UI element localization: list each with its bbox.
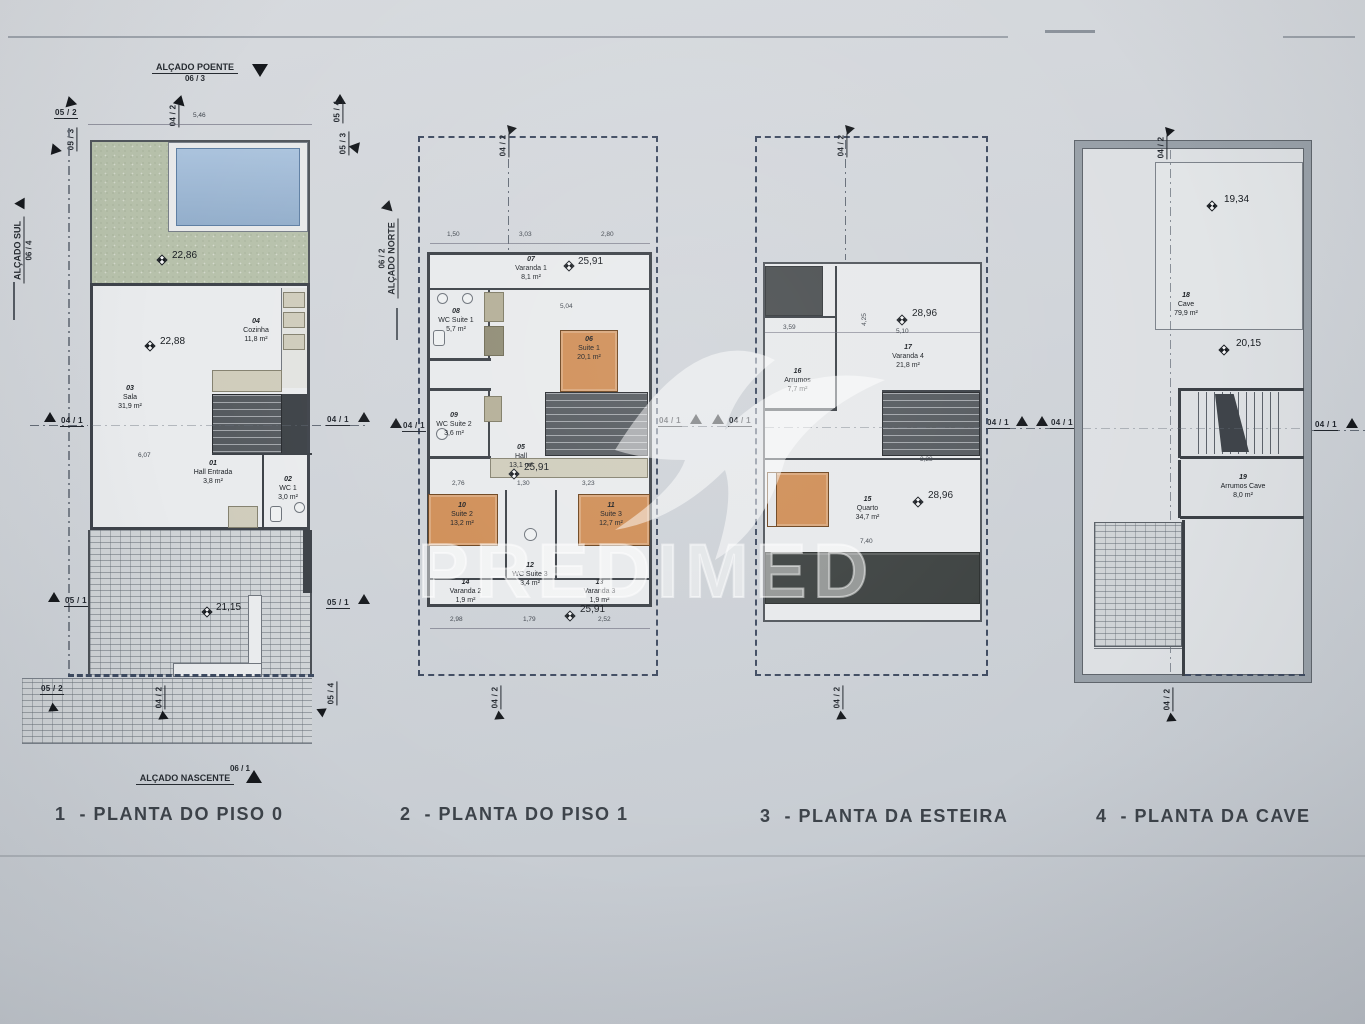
sheet-top-line-far-right: [1283, 36, 1355, 38]
room-area: 79,9 m²: [1160, 310, 1212, 319]
section-arrow-icon: [1016, 416, 1028, 426]
section-ref-04-1: 04 / 1: [986, 418, 1010, 429]
section-arrow-icon: [44, 412, 56, 422]
swimming-pool: [176, 148, 300, 226]
elevation-label-sul: ALÇADO SUL 06 / 4: [13, 196, 34, 306]
driveway-paving: [22, 678, 312, 744]
dim-line: [88, 124, 312, 125]
wall-segment: [427, 456, 491, 459]
room-label-cave: 18 Cave 79,9 m²: [1160, 292, 1212, 318]
sink-fixture: [462, 293, 473, 304]
section-arrow-icon: [46, 143, 62, 158]
wall-segment: [1182, 520, 1185, 676]
dimension: 1,30: [517, 480, 530, 487]
leader-line: [13, 282, 15, 320]
level-value: 22,86: [172, 250, 197, 261]
room-name: Suite 2: [436, 511, 488, 520]
room-num: 05: [496, 444, 546, 453]
dimension: 2,98: [450, 616, 463, 623]
wall-segment: [282, 394, 307, 454]
dimension: 1,79: [523, 616, 536, 623]
level-value: 25,91: [524, 462, 549, 473]
room-num: 04: [233, 318, 279, 327]
sheet-top-line: [8, 36, 1008, 38]
section-ref-04-2: 04 / 2: [1156, 136, 1167, 160]
elevation-nascente-name: ALÇADO NASCENTE: [136, 773, 235, 785]
leader-line: [396, 308, 398, 340]
elevation-label-nascente: 06 / 1 ALÇADO NASCENTE: [110, 764, 260, 785]
room-num: 19: [1212, 474, 1274, 483]
elevation-label-norte: 06 / 2 ALÇADO NORTE: [378, 199, 399, 319]
section-arrow-icon: [836, 711, 848, 724]
section-ref-05-3-right: 05 / 3: [338, 132, 349, 156]
elevation-norte-name: ALÇADO NORTE: [387, 218, 399, 299]
section-ref-04-1: 04 / 1: [1050, 418, 1074, 429]
room-label-varanda1: 07 Varanda 1 8,1 m²: [505, 256, 557, 282]
wall-segment: [1180, 388, 1304, 391]
dimension: 2,52: [598, 616, 611, 623]
caption-esteira: 3 - PLANTA DA ESTEIRA: [760, 806, 1008, 827]
room-area: 31,9 m²: [107, 403, 153, 412]
room-num: 07: [505, 256, 557, 265]
sheet-top-line-right: [1045, 30, 1095, 33]
section-ref-04-1: 04 / 1: [1314, 420, 1338, 431]
section-centerline: [508, 140, 509, 252]
section-ref-05-1: 05 / 1: [326, 598, 350, 609]
kitchen-appliance: [283, 334, 305, 350]
section-arrow-icon: [390, 418, 402, 428]
section-ref-05-4: 05 / 4: [326, 682, 337, 706]
room-name: Hall Entrada: [188, 469, 238, 478]
elevation-poente-name: ALÇADO POENTE: [152, 62, 238, 74]
room-name: Arrumos Cave: [1212, 483, 1274, 492]
room-label-arrumos-cave: 19 Arrumos Cave 8,0 m²: [1212, 474, 1274, 500]
sink-fixture: [437, 293, 448, 304]
section-ref-04-1: 04 / 1: [326, 415, 350, 426]
section-arrow-icon: [1346, 418, 1358, 428]
dimension: 5,46: [193, 112, 206, 119]
caption-cave: 4 - PLANTA DA CAVE: [1096, 806, 1311, 827]
room-num: 10: [436, 502, 488, 511]
elevation-sul-name: ALÇADO SUL: [13, 217, 25, 284]
level-value: 20,15: [1236, 338, 1261, 349]
room-num: 01: [188, 460, 238, 469]
section-ref-05-4: 05 / 4: [332, 100, 343, 124]
wall-segment: [427, 358, 491, 361]
room-label-sala: 03 Sala 31,9 m²: [107, 385, 153, 411]
boundary-dashed-line: [1185, 674, 1305, 676]
room-name: Cave: [1160, 301, 1212, 310]
wall-segment: [430, 288, 649, 290]
section-arrow-icon: [63, 95, 77, 108]
room-num: 09: [428, 412, 480, 421]
section-arrow-icon: [252, 64, 268, 77]
section-arrow-icon: [358, 412, 370, 422]
dimension: 2,76: [452, 480, 465, 487]
wall-segment: [303, 530, 312, 593]
dim-line: [430, 628, 650, 629]
kitchen-appliance: [283, 292, 305, 308]
elevation-sul-ref: 06 / 4: [25, 196, 34, 306]
entry-mat: [228, 506, 258, 528]
room-name: WC Suite 1: [430, 317, 482, 326]
stairs-piso0: [212, 394, 282, 454]
kitchen-island: [212, 370, 282, 392]
wc-sink-fixture: [294, 502, 305, 513]
section-ref-05-2: 05 / 2: [40, 684, 64, 695]
section-centerline: [845, 140, 846, 260]
wall-segment: [427, 388, 491, 391]
section-ref-04-2: 04 / 2: [154, 686, 165, 710]
room-label-wc-suite1: 08 WC Suite 1 5,7 m²: [430, 308, 482, 334]
room-label-wc-suite2: 09 WC Suite 2 3,6 m²: [428, 412, 480, 438]
elevation-norte-ref: 06 / 2: [378, 199, 387, 319]
section-arrow-icon: [494, 711, 506, 724]
closet: [484, 292, 504, 322]
elevation-nascente-ref: 06 / 1: [110, 764, 260, 773]
sheet-bottom-line: [0, 855, 1365, 857]
room-num: 03: [107, 385, 153, 394]
room-label-hall-entrada: 01 Hall Entrada 3,8 m²: [188, 460, 238, 486]
dimension: 2,80: [601, 231, 614, 238]
caption-piso0: 1 - PLANTA DO PISO 0: [55, 804, 284, 825]
wall-segment: [1180, 516, 1304, 519]
section-arrow-icon: [48, 592, 60, 602]
closet: [484, 396, 502, 422]
section-arrow-icon: [358, 594, 370, 604]
wall-segment: [1178, 460, 1181, 518]
elevation-poente-ref: 06 / 3: [130, 74, 260, 83]
dimension: 6,07: [138, 452, 151, 459]
dimension: 1,50: [447, 231, 460, 238]
drawing-sheet: ALÇADO POENTE 06 / 3 05 / 2 04 / 2 5,46 …: [0, 0, 1365, 1024]
section-centerline: [92, 425, 308, 426]
room-area: 3,8 m²: [188, 478, 238, 487]
section-centerline: [1082, 428, 1304, 429]
predimed-watermark: PREDIMED: [418, 528, 875, 615]
room-name: Varanda 1: [505, 265, 557, 274]
section-ref-04-2: 04 / 2: [832, 686, 843, 710]
room-label-suite2: 10 Suite 2 13,2 m²: [436, 502, 488, 528]
section-ref-04-1: 04 / 1: [60, 416, 84, 427]
level-value: 19,34: [1224, 194, 1249, 205]
section-arrow-icon: [1166, 713, 1178, 726]
section-ref-04-2: 04 / 2: [490, 686, 501, 710]
floor-joint-line: [1094, 648, 1182, 649]
section-arrow-icon: [246, 770, 262, 783]
level-value: 25,91: [578, 256, 603, 267]
section-ref-04-1: 04 / 1: [402, 421, 426, 432]
room-area: 11,8 m²: [233, 336, 279, 345]
room-area: 8,1 m²: [505, 274, 557, 283]
room-name: WC 1: [266, 485, 310, 494]
section-ref-04-2: 04 / 2: [1162, 688, 1173, 712]
level-value: 21,15: [216, 602, 241, 613]
room-area: 3,0 m²: [266, 494, 310, 503]
boundary-line: [68, 128, 70, 676]
section-ref-05-1: 05 / 1: [64, 596, 88, 607]
room-num: 18: [1160, 292, 1212, 301]
section-ref-05-2: 05 / 2: [54, 108, 78, 119]
level-value: 22,88: [160, 336, 185, 347]
dimension: 3,03: [519, 231, 532, 238]
caption-piso1: 2 - PLANTA DO PISO 1: [400, 804, 629, 825]
room-area: 8,0 m²: [1212, 492, 1274, 501]
terrace-paving: [88, 530, 312, 675]
elevation-label-poente: ALÇADO POENTE 06 / 3: [130, 62, 260, 83]
section-arrow-icon: [1036, 416, 1048, 426]
wall-segment: [262, 455, 264, 530]
boundary-dashed-line: [68, 674, 314, 677]
section-arrow-icon: [349, 142, 364, 156]
wall-segment: [1178, 388, 1181, 458]
cave-ramp: [1094, 522, 1182, 647]
wc-toilet-fixture: [270, 506, 282, 522]
room-label-cozinha: 04 Cozinha 11,8 m²: [233, 318, 279, 344]
closet: [484, 326, 504, 356]
section-arrow-icon: [314, 705, 326, 718]
room-label-wc1: 02 WC 1 3,0 m²: [266, 476, 310, 502]
room-num: 08: [430, 308, 482, 317]
room-area: 3,6 m²: [428, 430, 480, 439]
room-area: 5,7 m²: [430, 326, 482, 335]
dim-line: [430, 243, 650, 244]
room-num: 02: [266, 476, 310, 485]
room-name: WC Suite 2: [428, 421, 480, 430]
room-name: Cozinha: [233, 327, 279, 336]
room-name: Hall: [496, 453, 546, 462]
room-area: 13,2 m²: [436, 520, 488, 529]
wall-segment: [1180, 456, 1304, 459]
room-name: Sala: [107, 394, 153, 403]
kitchen-appliance: [283, 312, 305, 328]
